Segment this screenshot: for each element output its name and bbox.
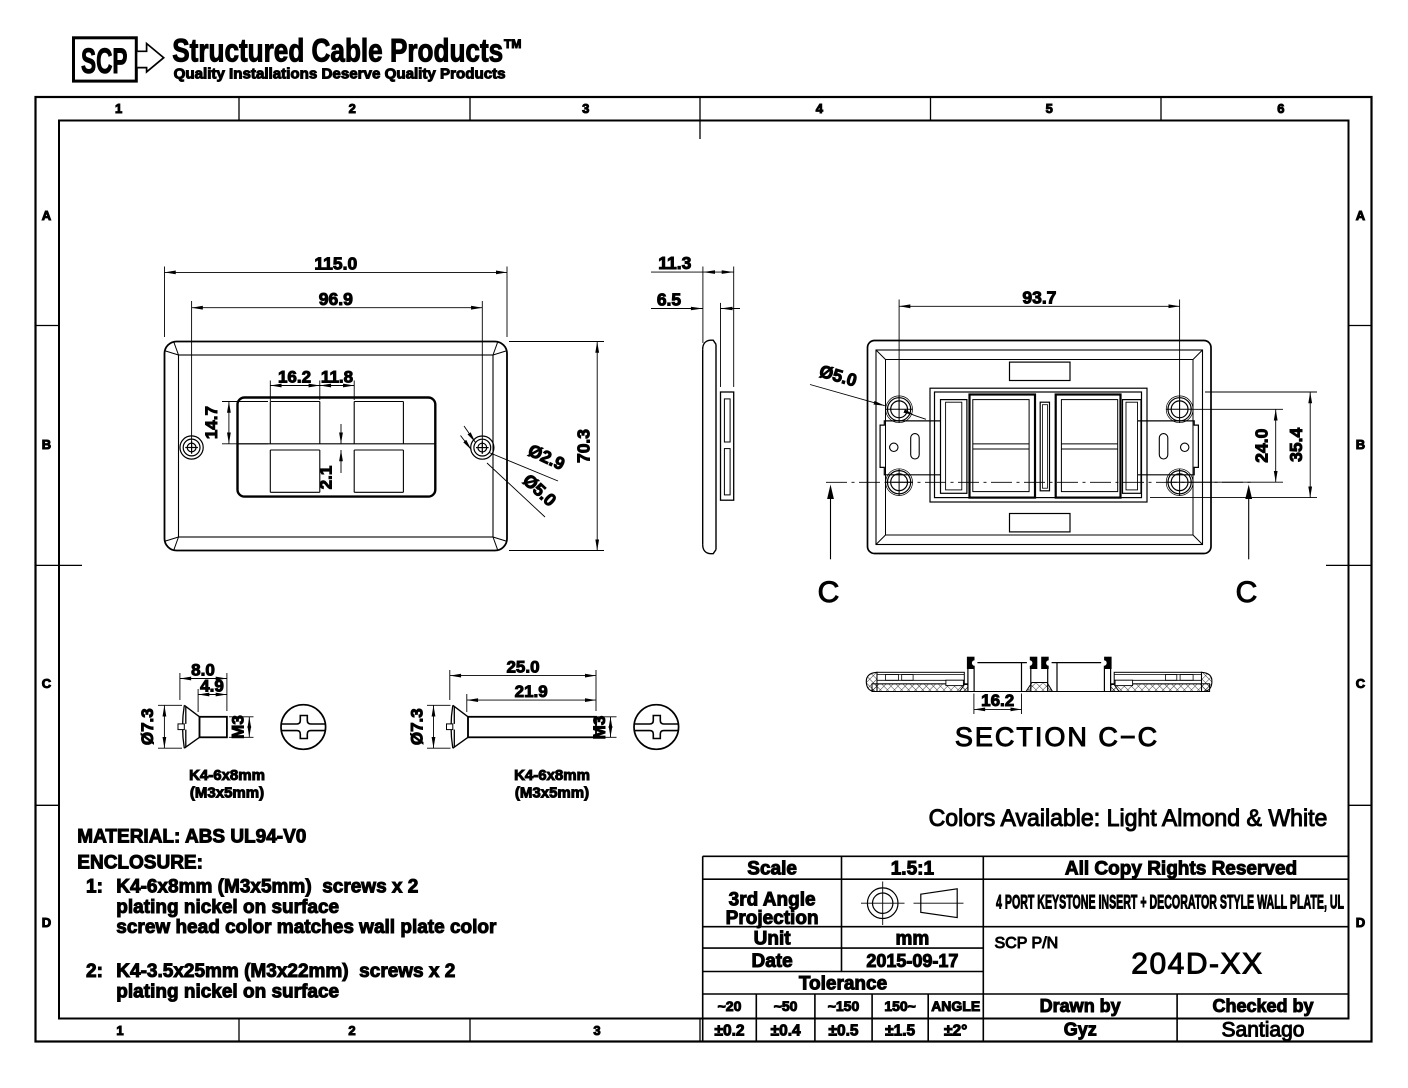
svg-text:16.2: 16.2: [981, 691, 1014, 710]
svg-text:4: 4: [816, 101, 824, 116]
svg-text:115.0: 115.0: [314, 254, 357, 274]
svg-text:93.7: 93.7: [1022, 287, 1056, 307]
svg-text:150~: 150~: [884, 998, 916, 1014]
svg-text:16.2: 16.2: [278, 368, 311, 387]
svg-text:35.4: 35.4: [1286, 428, 1306, 462]
svg-text:Date: Date: [752, 951, 793, 972]
svg-text:1:: 1:: [86, 877, 103, 898]
svg-text:Ø7.3: Ø7.3: [408, 708, 427, 745]
svg-text:5: 5: [1046, 101, 1053, 116]
svg-text:Drawn by: Drawn by: [1040, 996, 1121, 1016]
svg-text:~150: ~150: [828, 998, 860, 1014]
svg-text:2: 2: [349, 101, 356, 116]
svg-text:11.3: 11.3: [658, 253, 691, 273]
svg-text:14.7: 14.7: [202, 406, 221, 439]
svg-text:4.9: 4.9: [200, 677, 224, 696]
svg-text:Scale: Scale: [747, 859, 797, 880]
svg-text:A: A: [42, 208, 52, 223]
svg-text:ANGLE: ANGLE: [931, 998, 980, 1014]
svg-text:Checked by: Checked by: [1212, 996, 1313, 1016]
svg-text:SECTION C−C: SECTION C−C: [955, 722, 1159, 752]
svg-text:±0.4: ±0.4: [771, 1023, 801, 1040]
svg-text:K4-6x8mm: K4-6x8mm: [189, 767, 265, 784]
svg-text:(M3x5mm): (M3x5mm): [190, 785, 264, 802]
svg-text:±1.5: ±1.5: [885, 1023, 915, 1040]
svg-text:SCP P/N: SCP P/N: [995, 935, 1059, 952]
svg-text:All Copy Rights Reserved: All Copy Rights Reserved: [1065, 859, 1297, 880]
svg-text:A: A: [1356, 208, 1366, 223]
svg-text:plating nickel on surface: plating nickel on surface: [116, 982, 339, 1003]
svg-text:MATERIAL: ABS UL94-V0: MATERIAL: ABS UL94-V0: [77, 827, 306, 848]
svg-text:K4-3.5x25mm (M3x22mm) screws: K4-3.5x25mm (M3x22mm) screws x 2: [116, 961, 455, 982]
svg-text:C: C: [1356, 676, 1366, 691]
svg-text:2:: 2:: [86, 961, 103, 982]
svg-text:3: 3: [582, 101, 589, 116]
svg-text:±0.5: ±0.5: [828, 1023, 858, 1040]
svg-text:204D-XX: 204D-XX: [1131, 948, 1263, 981]
svg-text:21.9: 21.9: [515, 682, 548, 701]
svg-text:plating nickel on surface: plating nickel on surface: [116, 897, 339, 918]
svg-text:96.9: 96.9: [319, 289, 353, 309]
svg-text:2015-09-17: 2015-09-17: [866, 951, 958, 971]
svg-text:~50: ~50: [774, 998, 798, 1014]
svg-text:Quality Installations Deserve: Quality Installations Deserve Quality Pr…: [174, 66, 506, 83]
svg-text:D: D: [42, 915, 51, 930]
svg-text:Santiago: Santiago: [1222, 1019, 1305, 1042]
svg-text:6.5: 6.5: [657, 290, 682, 310]
svg-text:SCP: SCP: [81, 42, 128, 81]
svg-text:K4-6x8mm (M3x5mm) screws x 2: K4-6x8mm (M3x5mm) screws x 2: [116, 877, 418, 898]
svg-text:2: 2: [348, 1023, 355, 1038]
svg-text:C: C: [818, 576, 840, 609]
svg-text:70.3: 70.3: [574, 429, 594, 463]
svg-text:±2°: ±2°: [944, 1023, 967, 1040]
svg-text:Structured Cable Products: Structured Cable Products: [172, 32, 503, 68]
svg-text:6: 6: [1277, 101, 1284, 116]
svg-text:M3: M3: [229, 715, 248, 739]
svg-text:1: 1: [115, 101, 122, 116]
svg-text:25.0: 25.0: [506, 658, 539, 677]
svg-text:~20: ~20: [718, 998, 742, 1014]
svg-text:11.8: 11.8: [321, 368, 353, 387]
svg-text:±0.2: ±0.2: [714, 1023, 744, 1040]
svg-text:C: C: [42, 676, 52, 691]
svg-text:ENCLOSURE:: ENCLOSURE:: [77, 853, 203, 874]
svg-text:C: C: [1236, 576, 1258, 609]
svg-text:K4-6x8mm: K4-6x8mm: [514, 767, 590, 784]
svg-text:Colors Available: Light Almond: Colors Available: Light Almond & White: [929, 805, 1328, 832]
svg-text:D: D: [1356, 915, 1365, 930]
svg-text:Projection: Projection: [726, 908, 819, 929]
svg-text:2.1: 2.1: [317, 466, 336, 490]
svg-text:1.5:1: 1.5:1: [891, 859, 935, 880]
svg-text:Unit: Unit: [754, 929, 792, 950]
svg-text:TM: TM: [504, 37, 521, 51]
svg-text:B: B: [1356, 437, 1365, 452]
svg-text:1: 1: [116, 1023, 123, 1038]
svg-text:4 PORT KEYSTONE INSERT + DECOR: 4 PORT KEYSTONE INSERT + DECORATOR STYLE…: [996, 892, 1344, 914]
svg-text:M3: M3: [590, 716, 609, 740]
svg-text:mm: mm: [896, 929, 930, 950]
svg-text:Ø7.3: Ø7.3: [138, 708, 157, 745]
svg-text:3: 3: [593, 1023, 600, 1038]
svg-text:Gyz: Gyz: [1064, 1020, 1097, 1040]
svg-text:B: B: [42, 437, 51, 452]
svg-text:(M3x5mm): (M3x5mm): [515, 785, 589, 802]
svg-text:screw head color matches wall: screw head color matches wall plate colo…: [116, 917, 497, 938]
svg-text:24.0: 24.0: [1252, 428, 1272, 462]
svg-text:Tolerance: Tolerance: [799, 974, 887, 995]
